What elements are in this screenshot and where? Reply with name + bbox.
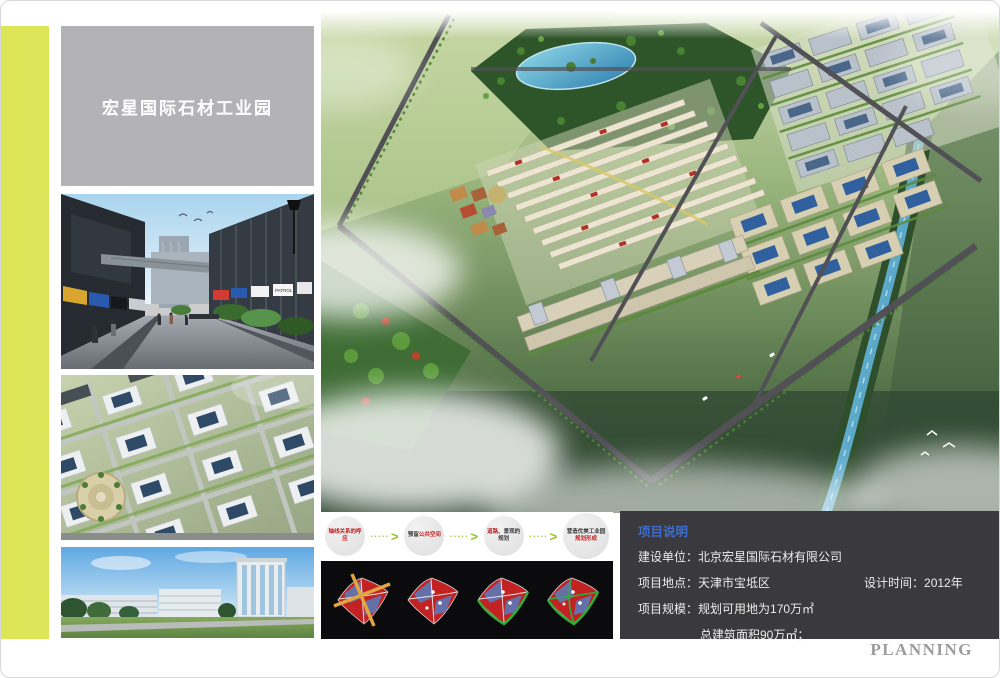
builder-value: 北京宏星国际石材有限公司 bbox=[698, 550, 842, 564]
street-photo-graphic: PATROL bbox=[61, 194, 314, 369]
aerial-photo bbox=[61, 375, 314, 540]
planning-label: PLANNING bbox=[870, 640, 973, 660]
masterplan-rendering bbox=[321, 11, 999, 513]
title-box: 宏星国际石材工业园 bbox=[61, 26, 314, 186]
street-photo: PATROL bbox=[61, 194, 314, 369]
design-time: 设计时间：2012年 bbox=[864, 574, 963, 591]
flow-step-1: 轴线关系的呼应 bbox=[325, 516, 365, 556]
concept-diagram-box bbox=[321, 561, 613, 639]
project-info-title: 项目说明 bbox=[638, 521, 999, 540]
flow-step-1-label: 轴线关系的呼应 bbox=[327, 529, 363, 544]
location-label: 项目地点： bbox=[638, 576, 698, 590]
page-title: 宏星国际石材工业园 bbox=[102, 94, 273, 119]
flow-step-3-label-red: 道路、 bbox=[487, 529, 504, 535]
concept-diagram-4 bbox=[540, 570, 604, 630]
presentation-board: 宏星国际石材工业园 bbox=[0, 0, 1000, 678]
flow-step-2: 预留公共空间 bbox=[404, 516, 444, 556]
flow-step-4: 营造优美工业园 规划形成 bbox=[563, 513, 609, 559]
project-info-box: 项目说明 建设单位：北京宏星国际石材有限公司 项目地点：天津市宝坻区 设计时间：… bbox=[620, 511, 999, 639]
info-row-builder: 建设单位：北京宏星国际石材有限公司 bbox=[638, 548, 999, 565]
shop-sign-patrol: PATROL bbox=[275, 288, 293, 293]
concept-flow: 轴线关系的呼应 •••••> 预留公共空间 •••••> 道路、景观的规划 ••… bbox=[321, 512, 613, 560]
flow-step-4-line1: 营造优美工业园 bbox=[567, 529, 606, 536]
building-photo-graphic bbox=[61, 547, 314, 638]
flow-step-4-line2: 规划形成 bbox=[575, 536, 597, 543]
flow-step-2-label-dark: 预留 bbox=[408, 532, 419, 538]
builder-label: 建设单位： bbox=[638, 550, 698, 564]
scale-value: 规划可用地为170万㎡ bbox=[698, 602, 814, 616]
info-row-location: 项目地点：天津市宝坻区 设计时间：2012年 bbox=[638, 574, 999, 591]
flow-step-3: 道路、景观的规划 bbox=[484, 516, 524, 556]
floor-area-value: 总建筑面积90万㎡； bbox=[700, 628, 809, 642]
masterplan-graphic bbox=[321, 11, 999, 513]
flow-step-2-label-red: 公共空间 bbox=[419, 532, 441, 538]
concept-diagram-3 bbox=[470, 570, 534, 630]
accent-strip bbox=[1, 26, 49, 639]
concept-diagram-2 bbox=[400, 570, 464, 630]
scale-label: 项目规模： bbox=[638, 602, 698, 616]
concept-diagram-1 bbox=[330, 570, 394, 630]
dotted-arrow-icon: •••••> bbox=[450, 529, 477, 544]
dotted-arrow-icon: •••••> bbox=[530, 529, 557, 544]
aerial-photo-graphic bbox=[61, 375, 314, 540]
building-photo bbox=[61, 547, 314, 638]
info-row-scale: 项目规模：规划可用地为170万㎡ bbox=[638, 600, 999, 617]
dotted-arrow-icon: •••••> bbox=[371, 529, 398, 544]
location-value: 天津市宝坻区 bbox=[698, 576, 770, 590]
